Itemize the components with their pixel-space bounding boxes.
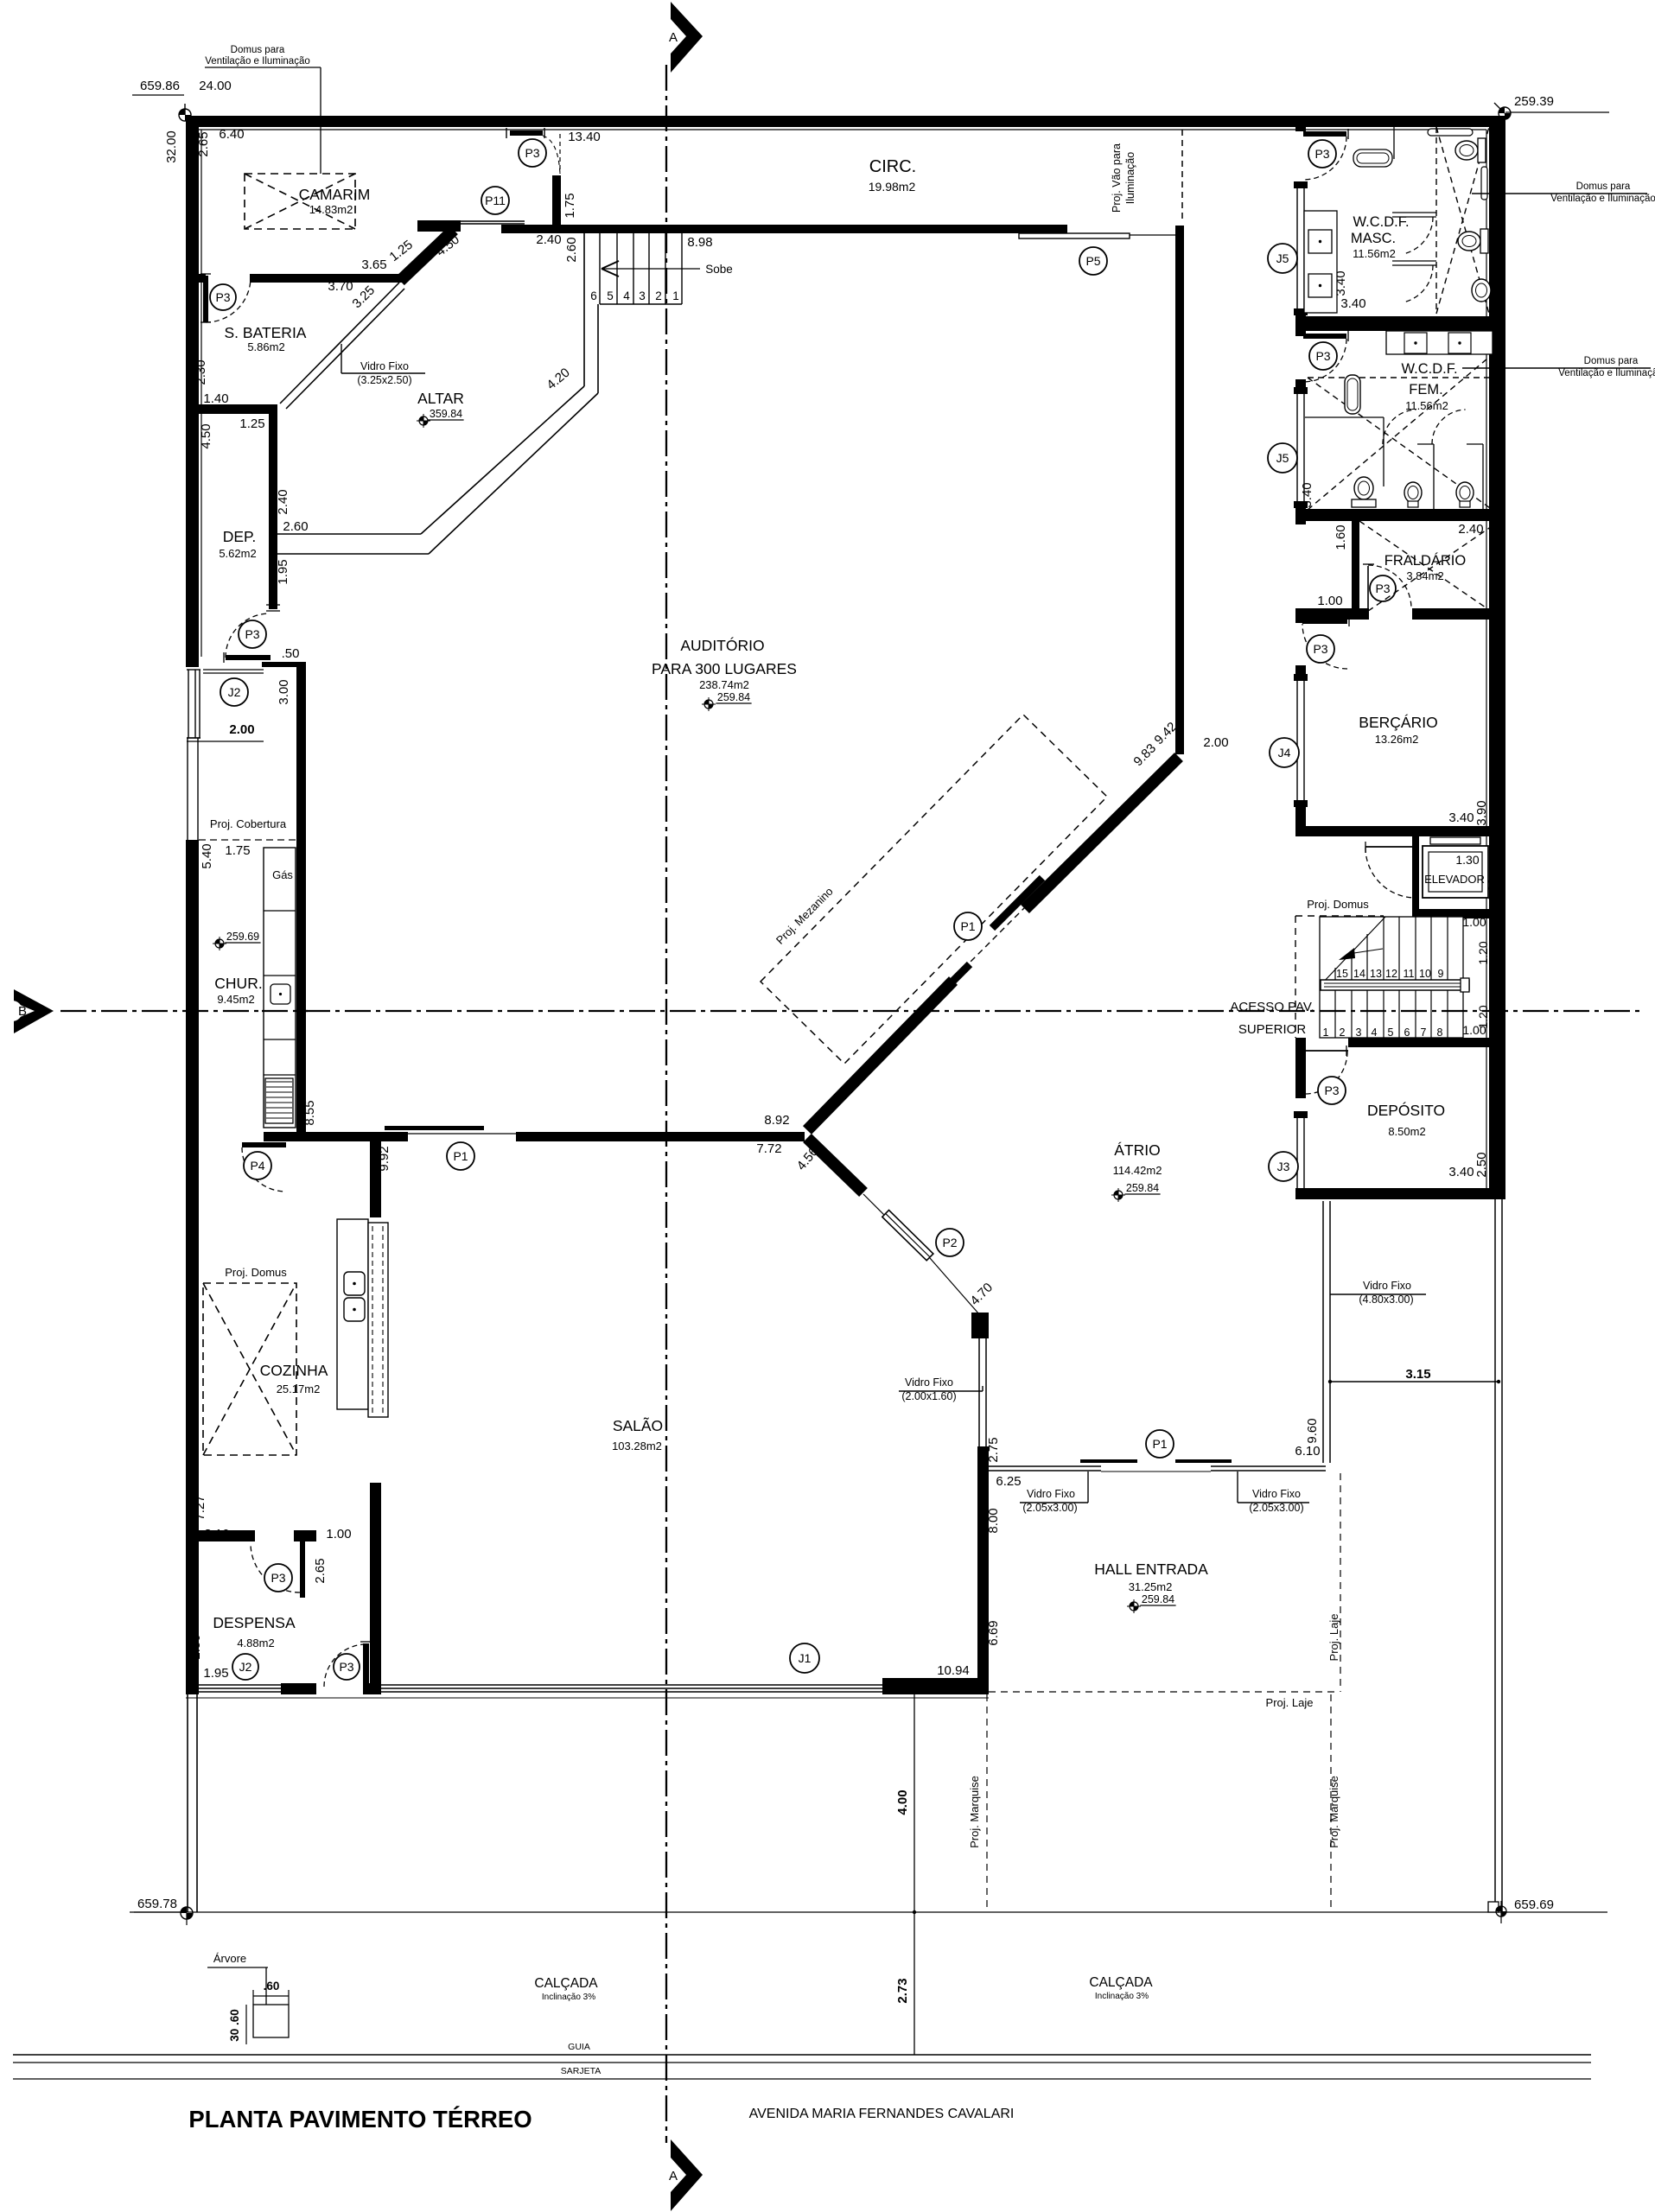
- svg-text:659.69: 659.69: [1514, 1897, 1554, 1912]
- svg-text:9: 9: [1438, 968, 1444, 980]
- svg-text:8.98: 8.98: [687, 235, 712, 250]
- svg-text:659.86: 659.86: [140, 79, 180, 93]
- svg-text:13.40: 13.40: [568, 130, 601, 144]
- svg-text:1.75: 1.75: [225, 843, 250, 858]
- svg-text:31.25m2: 31.25m2: [1129, 1580, 1173, 1593]
- svg-text:3.65: 3.65: [361, 257, 386, 272]
- svg-text:Domus para: Domus para: [1576, 181, 1631, 192]
- svg-text:2.75: 2.75: [986, 1437, 1001, 1462]
- svg-text:DESPENSA: DESPENSA: [213, 1614, 296, 1631]
- svg-text:(2.00x1.60): (2.00x1.60): [901, 1390, 956, 1402]
- svg-text:1.00: 1.00: [326, 1527, 351, 1541]
- svg-text:P3: P3: [1324, 1084, 1339, 1097]
- svg-text:32.00: 32.00: [164, 130, 179, 163]
- svg-text:P4: P4: [250, 1159, 264, 1173]
- svg-text:Iluminação: Iluminação: [1124, 152, 1136, 204]
- svg-text:11: 11: [1404, 968, 1415, 980]
- svg-text:4: 4: [623, 289, 630, 302]
- svg-text:1.95: 1.95: [203, 1666, 228, 1681]
- svg-text:J5: J5: [1276, 251, 1289, 265]
- svg-text:A: A: [669, 2169, 678, 2183]
- svg-text:5.62m2: 5.62m2: [219, 547, 256, 560]
- svg-text:CAMARIM: CAMARIM: [299, 186, 371, 203]
- svg-text:MASC.: MASC.: [1351, 231, 1396, 246]
- svg-text:Domus para: Domus para: [1584, 356, 1639, 366]
- svg-text:2.50: 2.50: [1474, 1152, 1489, 1177]
- svg-text:6.10: 6.10: [1295, 1444, 1320, 1459]
- svg-text:Proj. Laje: Proj. Laje: [1266, 1696, 1314, 1709]
- svg-text:P3: P3: [1314, 147, 1329, 161]
- svg-text:2: 2: [1340, 1027, 1346, 1039]
- svg-text:P3: P3: [525, 146, 539, 160]
- svg-text:P3: P3: [1313, 642, 1327, 656]
- svg-text:CALÇADA: CALÇADA: [1089, 1975, 1153, 1990]
- svg-text:5: 5: [607, 289, 614, 302]
- svg-text:Ventilação e Iluminação: Ventilação e Iluminação: [1550, 194, 1655, 204]
- svg-text:238.74m2: 238.74m2: [699, 678, 749, 691]
- svg-text:BERÇÁRIO: BERÇÁRIO: [1359, 714, 1437, 731]
- svg-text:25.17m2: 25.17m2: [277, 1382, 321, 1395]
- svg-text:1.20: 1.20: [1476, 941, 1490, 964]
- svg-text:1: 1: [672, 289, 679, 302]
- svg-text:2: 2: [655, 289, 662, 302]
- svg-text:1.30: 1.30: [1486, 878, 1499, 901]
- svg-text:8.50m2: 8.50m2: [1388, 1125, 1425, 1138]
- svg-text:AUDITÓRIO: AUDITÓRIO: [680, 636, 764, 654]
- svg-text:SUPERIOR: SUPERIOR: [1238, 1022, 1307, 1037]
- svg-text:259.69: 259.69: [226, 931, 259, 943]
- svg-text:1.60: 1.60: [1334, 524, 1348, 550]
- svg-text:FEM.: FEM.: [1409, 382, 1442, 397]
- svg-text:HALL ENTRADA: HALL ENTRADA: [1094, 1560, 1208, 1578]
- svg-text:PLANTA PAVIMENTO TÉRREO: PLANTA PAVIMENTO TÉRREO: [188, 2106, 532, 2133]
- svg-text:CHUR.: CHUR.: [214, 975, 262, 992]
- svg-text:.50: .50: [282, 646, 300, 661]
- svg-text:CIRC.: CIRC.: [869, 157, 916, 176]
- svg-text:10.94: 10.94: [937, 1663, 970, 1678]
- svg-text:5: 5: [1388, 1027, 1394, 1039]
- svg-text:P1: P1: [453, 1149, 468, 1163]
- svg-text:659.78: 659.78: [137, 1897, 177, 1911]
- svg-text:2.40: 2.40: [536, 232, 561, 247]
- svg-text:P3: P3: [1375, 582, 1390, 595]
- svg-text:2.00: 2.00: [229, 722, 254, 737]
- svg-text:259.84: 259.84: [717, 691, 750, 703]
- svg-text:7.27: 7.27: [193, 1495, 207, 1520]
- svg-text:30 .60: 30 .60: [228, 2009, 241, 2042]
- svg-text:7: 7: [1421, 1027, 1427, 1039]
- svg-text:Vidro Fixo: Vidro Fixo: [1027, 1488, 1075, 1500]
- svg-text:Proj. Marquise: Proj. Marquise: [1327, 1776, 1340, 1848]
- svg-text:2.40: 2.40: [276, 489, 290, 514]
- svg-text:Proj. Domus: Proj. Domus: [1307, 898, 1369, 911]
- svg-text:114.42m2: 114.42m2: [1113, 1164, 1162, 1177]
- svg-text:2.65: 2.65: [196, 131, 211, 156]
- svg-text:13: 13: [1370, 968, 1382, 980]
- svg-text:1: 1: [1323, 1027, 1329, 1039]
- svg-text:4: 4: [1372, 1027, 1378, 1039]
- svg-text:SALÃO: SALÃO: [613, 1416, 663, 1434]
- svg-text:Inclinação 3%: Inclinação 3%: [1095, 1992, 1149, 2001]
- svg-text:COZINHA: COZINHA: [260, 1362, 328, 1379]
- svg-text:CALÇADA: CALÇADA: [534, 1976, 598, 1991]
- svg-text:11.56m2: 11.56m2: [1405, 399, 1448, 412]
- svg-text:A: A: [669, 30, 678, 45]
- svg-text:.60: .60: [264, 1980, 280, 1993]
- svg-text:4.00: 4.00: [895, 1789, 910, 1815]
- svg-text:6.69: 6.69: [986, 1620, 1001, 1645]
- svg-text:P3: P3: [1315, 349, 1330, 363]
- svg-text:13.26m2: 13.26m2: [1375, 733, 1419, 746]
- svg-text:GUIA: GUIA: [568, 2042, 590, 2052]
- svg-text:9.60: 9.60: [1305, 1418, 1320, 1443]
- svg-text:Vidro Fixo: Vidro Fixo: [1252, 1488, 1301, 1500]
- svg-text:8.92: 8.92: [764, 1113, 789, 1128]
- svg-text:19.98m2: 19.98m2: [869, 180, 916, 194]
- svg-text:ELEVADOR: ELEVADOR: [1424, 873, 1485, 886]
- svg-text:P11: P11: [485, 194, 506, 207]
- svg-text:2.00: 2.00: [1203, 735, 1228, 750]
- svg-text:P3: P3: [271, 1571, 285, 1585]
- svg-text:1.75: 1.75: [563, 193, 577, 218]
- svg-text:3.15: 3.15: [1405, 1367, 1430, 1382]
- svg-text:3.90: 3.90: [1474, 800, 1489, 825]
- svg-text:Vidro Fixo: Vidro Fixo: [905, 1376, 953, 1389]
- svg-text:8.00: 8.00: [986, 1508, 1001, 1533]
- svg-text:P5: P5: [1085, 254, 1100, 268]
- svg-text:259.39: 259.39: [1514, 94, 1554, 109]
- svg-text:1.95: 1.95: [276, 559, 290, 584]
- svg-text:J4: J4: [1278, 746, 1291, 760]
- svg-text:(4.80x3.00): (4.80x3.00): [1359, 1294, 1413, 1306]
- svg-text:P3: P3: [245, 627, 259, 641]
- svg-text:3.70: 3.70: [328, 279, 353, 294]
- svg-text:6: 6: [590, 289, 597, 302]
- svg-text:3.40: 3.40: [1448, 1165, 1474, 1179]
- svg-text:6: 6: [1404, 1027, 1410, 1039]
- svg-text:3.40: 3.40: [1300, 482, 1314, 507]
- svg-text:(2.05x3.00): (2.05x3.00): [1022, 1502, 1077, 1514]
- svg-text:Vidro Fixo: Vidro Fixo: [360, 360, 409, 372]
- svg-text:J3: J3: [1277, 1160, 1290, 1173]
- svg-text:1.00: 1.00: [1317, 594, 1342, 608]
- svg-text:1.40: 1.40: [203, 391, 228, 406]
- svg-text:359.84: 359.84: [430, 408, 462, 420]
- svg-text:14.83m2: 14.83m2: [309, 203, 353, 216]
- svg-text:P3: P3: [339, 1660, 353, 1674]
- svg-text:4.50: 4.50: [199, 423, 213, 448]
- svg-text:J2: J2: [228, 685, 241, 699]
- svg-text:2.60: 2.60: [564, 237, 579, 262]
- svg-text:ACESSO PAV.: ACESSO PAV.: [1230, 1000, 1314, 1014]
- svg-text:Proj. Laje: Proj. Laje: [1327, 1614, 1340, 1662]
- svg-text:S. BATERIA: S. BATERIA: [225, 324, 307, 341]
- svg-text:3.40: 3.40: [1340, 296, 1365, 311]
- svg-text:2.50: 2.50: [188, 1634, 203, 1659]
- svg-text:2.73: 2.73: [895, 1978, 910, 2003]
- svg-text:3: 3: [1356, 1027, 1362, 1039]
- svg-text:12: 12: [1385, 968, 1397, 980]
- svg-text:J1: J1: [799, 1651, 812, 1665]
- svg-text:103.28m2: 103.28m2: [612, 1440, 662, 1452]
- svg-text:P2: P2: [942, 1236, 957, 1249]
- svg-text:W.C.D.F.: W.C.D.F.: [1401, 361, 1457, 377]
- svg-text:259.84: 259.84: [1142, 1593, 1174, 1605]
- svg-text:1.00: 1.00: [1462, 915, 1486, 929]
- svg-text:Domus para: Domus para: [231, 45, 285, 55]
- svg-text:Ventilação e Iluminação: Ventilação e Iluminação: [1558, 368, 1655, 378]
- svg-text:Sobe: Sobe: [705, 263, 733, 276]
- svg-text:DEPÓSITO: DEPÓSITO: [1367, 1101, 1445, 1119]
- svg-text:6.40: 6.40: [219, 127, 244, 142]
- svg-text:7.72: 7.72: [756, 1141, 781, 1156]
- svg-text:14: 14: [1353, 968, 1365, 980]
- svg-text:259.84: 259.84: [1126, 1182, 1159, 1194]
- svg-text:Ventilação e Iluminação: Ventilação e Iluminação: [205, 56, 309, 67]
- svg-text:B: B: [18, 1004, 27, 1019]
- svg-text:Árvore: Árvore: [213, 1952, 246, 1965]
- svg-text:15: 15: [1336, 968, 1348, 980]
- svg-text:Gás: Gás: [272, 868, 293, 881]
- svg-text:4.88m2: 4.88m2: [237, 1637, 274, 1649]
- svg-text:1.30: 1.30: [1455, 853, 1479, 867]
- svg-text:8: 8: [1437, 1027, 1443, 1039]
- svg-text:2.30: 2.30: [194, 359, 208, 385]
- svg-text:Proj. Cobertura: Proj. Cobertura: [210, 817, 287, 830]
- svg-text:5.86m2: 5.86m2: [247, 340, 284, 353]
- svg-text:(2.05x3.00): (2.05x3.00): [1249, 1502, 1303, 1514]
- svg-text:Vidro Fixo: Vidro Fixo: [1363, 1280, 1411, 1292]
- svg-text:2.65: 2.65: [313, 1558, 328, 1583]
- svg-text:AVENIDA MARIA FERNANDES CAVALA: AVENIDA MARIA FERNANDES CAVALARI: [749, 2107, 1015, 2121]
- svg-text:1.25: 1.25: [239, 416, 264, 431]
- svg-text:J5: J5: [1276, 451, 1289, 465]
- svg-text:8.55: 8.55: [302, 1100, 317, 1125]
- svg-text:10: 10: [1419, 968, 1431, 980]
- svg-text:PARA 300 LUGARES: PARA 300 LUGARES: [652, 660, 797, 677]
- svg-text:(3.25x2.50): (3.25x2.50): [357, 374, 411, 386]
- svg-text:DEP.: DEP.: [223, 528, 257, 545]
- svg-text:P1: P1: [1152, 1437, 1167, 1451]
- svg-text:11.56m2: 11.56m2: [1353, 247, 1396, 260]
- svg-text:SARJETA: SARJETA: [561, 2066, 601, 2076]
- svg-text:3.00: 3.00: [277, 679, 291, 704]
- svg-text:5.40: 5.40: [200, 843, 214, 868]
- svg-text:Proj. Vão para: Proj. Vão para: [1111, 143, 1123, 213]
- svg-text:Proj. Marquise: Proj. Marquise: [968, 1776, 981, 1848]
- svg-text:Inclinação 3%: Inclinação 3%: [542, 1993, 595, 2002]
- svg-text:6.25: 6.25: [996, 1474, 1021, 1489]
- svg-text:FRALDÁRIO: FRALDÁRIO: [1384, 552, 1467, 569]
- svg-text:P3: P3: [215, 290, 230, 304]
- svg-text:ÁTRIO: ÁTRIO: [1114, 1141, 1160, 1159]
- svg-text:9.45m2: 9.45m2: [217, 993, 254, 1006]
- svg-text:1.00: 1.00: [1462, 1023, 1486, 1037]
- svg-text:3.40: 3.40: [1448, 810, 1474, 825]
- svg-text:J2: J2: [239, 1660, 252, 1674]
- svg-text:3: 3: [639, 289, 646, 302]
- svg-text:24.00: 24.00: [199, 79, 232, 93]
- svg-text:2.60: 2.60: [283, 519, 308, 534]
- svg-text:Proj. Domus: Proj. Domus: [225, 1266, 287, 1279]
- svg-text:P1: P1: [960, 919, 975, 933]
- svg-text:ALTAR: ALTAR: [417, 390, 464, 407]
